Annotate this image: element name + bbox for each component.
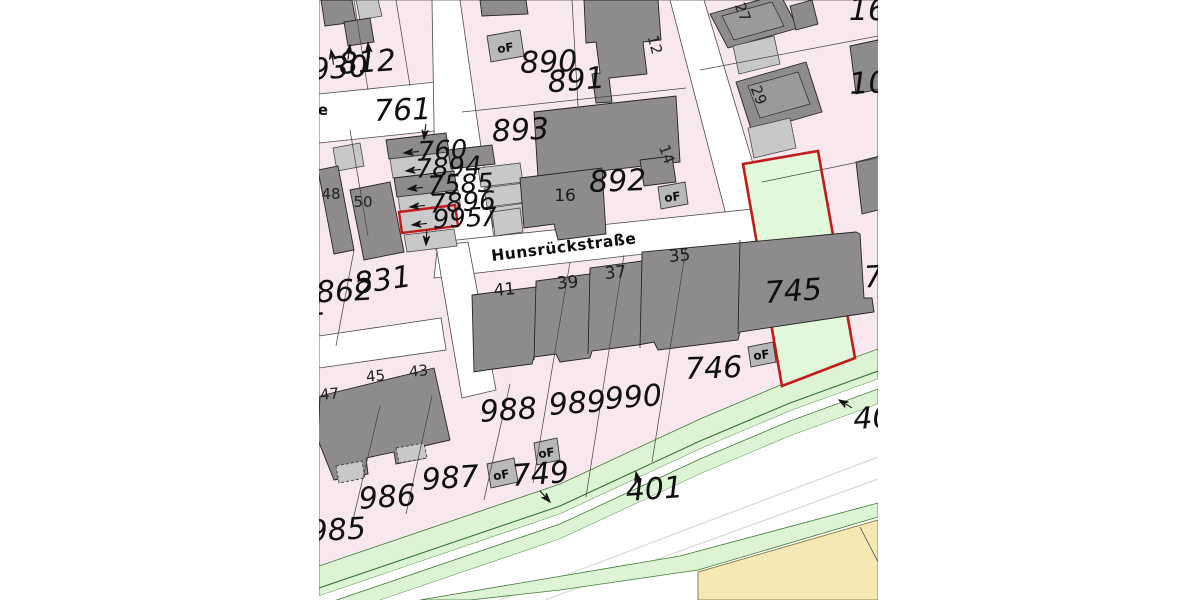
cadastral-map-canvas[interactable]: 930 812 e 761 760 7894 7585 7896 995 7 4… [0, 0, 1200, 600]
house-number-37: 37 [604, 262, 627, 284]
building-annex [356, 0, 382, 20]
parcel-label-988: 988 [479, 391, 539, 430]
of-annotation-label: oF [752, 347, 770, 363]
parcel-label-745: 745 [764, 272, 824, 311]
house-number-39: 39 [556, 272, 579, 294]
parcel-label-891: 891 [546, 61, 606, 101]
of-annotation-label: oF [663, 189, 681, 205]
parcel-label-16-topright: 16 [849, 0, 887, 28]
parcel-label-989: 989 [548, 384, 608, 423]
parcel-label-7-right: 7 [863, 260, 884, 296]
of-annotation-label: oF [496, 40, 514, 56]
parcel-label-746: 746 [684, 350, 742, 387]
house-number-47: 47 [319, 384, 340, 404]
parcel-label-985: 985 [308, 511, 368, 550]
parcel-label-401: 401 [625, 470, 685, 509]
street-name-partial: e [318, 101, 328, 119]
house-number-50: 50 [353, 193, 372, 211]
building [480, 0, 528, 16]
parcel-label-10-right: 10 [849, 65, 889, 102]
of-annotation-label: oF [537, 445, 555, 461]
house-number-48: 48 [321, 185, 340, 203]
house-number-43: 43 [408, 361, 429, 381]
parcel-label-893: 893 [491, 112, 550, 150]
parcel-label-40-partial: 40 [853, 400, 893, 437]
house-number-35: 35 [668, 245, 691, 267]
house-number-45: 45 [365, 366, 386, 386]
parcel-label-812: 812 [338, 43, 398, 82]
parcel-label-761: 761 [373, 92, 431, 129]
parcel-label-986: 986 [358, 478, 418, 517]
parcel-label-892: 892 [588, 163, 646, 200]
parcel-label-987: 987 [421, 459, 481, 498]
parcel-label-995: 995 [432, 203, 483, 236]
house-number-16: 16 [554, 186, 576, 206]
house-number-41: 41 [493, 279, 516, 301]
cadastral-map-page: 930 812 e 761 760 7894 7585 7896 995 7 4… [0, 0, 1200, 600]
of-annotation-label: oF [492, 467, 511, 484]
parcel-label-990: 990 [604, 378, 664, 417]
parcel-label-7-strip: 7 [480, 203, 499, 234]
parcel-label-partial-1: 1 [307, 288, 328, 324]
